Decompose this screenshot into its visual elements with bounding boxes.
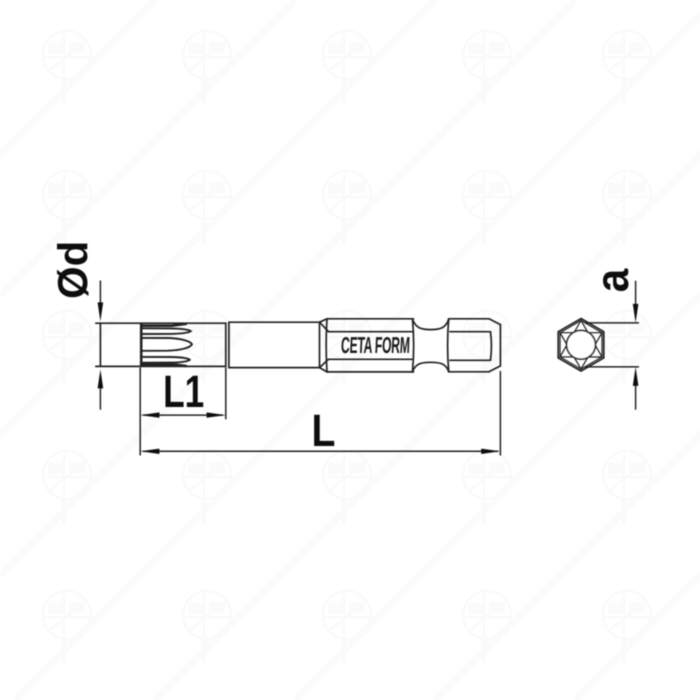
svg-text:L1: L1 <box>163 366 204 417</box>
svg-text:Ød: Ød <box>50 241 97 299</box>
svg-text:CETA FORM: CETA FORM <box>340 332 410 358</box>
svg-text:L: L <box>312 405 336 455</box>
svg-text:a: a <box>587 268 638 292</box>
